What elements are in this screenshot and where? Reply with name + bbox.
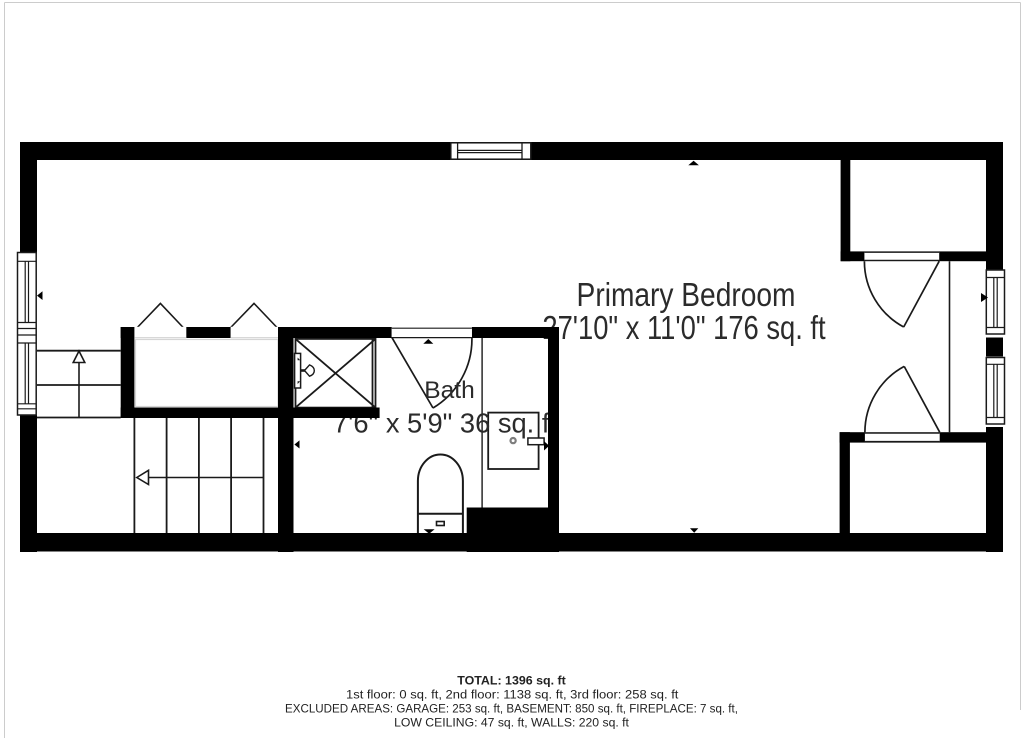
svg-text:TOTAL: 1396 sq. ft: TOTAL: 1396 sq. ft	[457, 674, 566, 688]
svg-text:1st floor: 0 sq. ft, 2nd floor: 1st floor: 0 sq. ft, 2nd floor: 1138 sq.…	[346, 688, 679, 701]
svg-text:27'10" x 11'0" 176 sq. ft: 27'10" x 11'0" 176 sq. ft	[542, 311, 826, 347]
svg-text:EXCLUDED AREAS: GARAGE: 253 sq: EXCLUDED AREAS: GARAGE: 253 sq. ft, BASE…	[285, 702, 738, 715]
svg-text:Primary Bedroom: Primary Bedroom	[577, 277, 796, 314]
svg-text:LOW CEILING: 47 sq. ft, WALLS:: LOW CEILING: 47 sq. ft, WALLS: 220 sq. f…	[394, 716, 629, 730]
svg-text:Bath: Bath	[424, 377, 474, 404]
